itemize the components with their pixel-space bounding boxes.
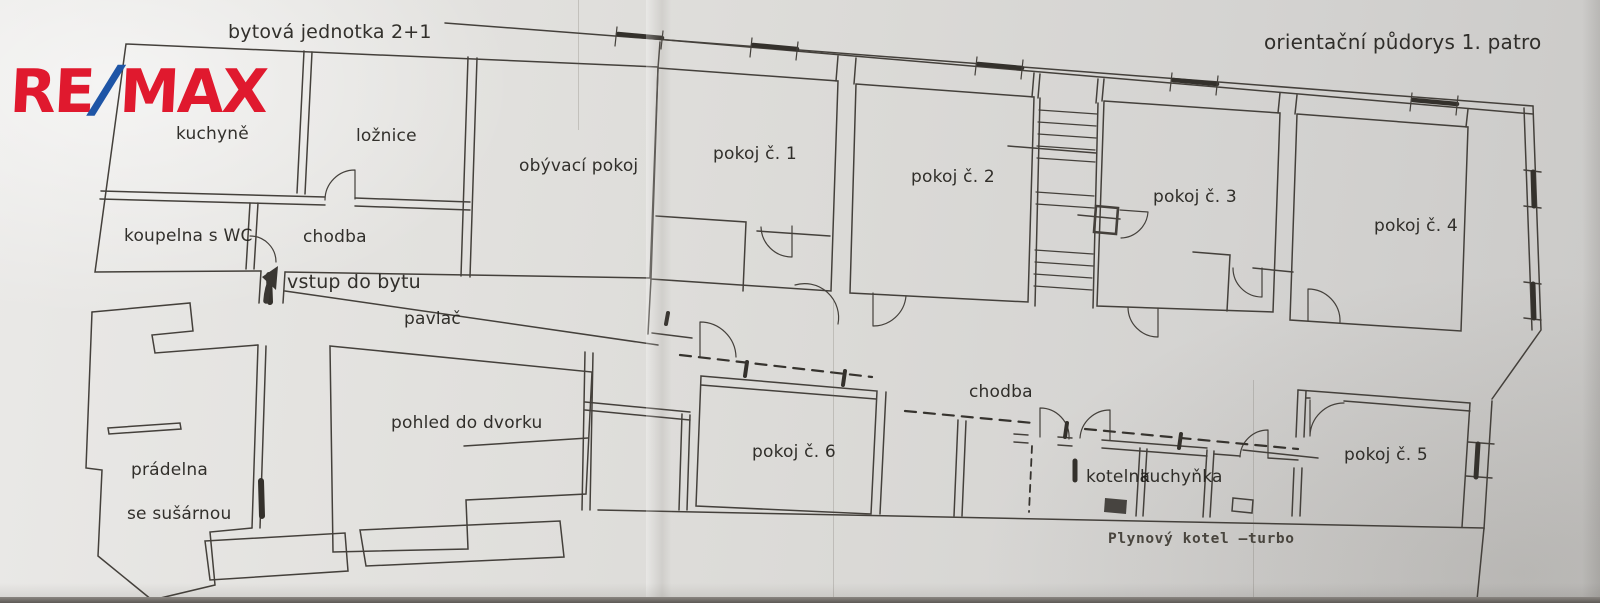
photo-bottom-shadow	[0, 583, 1600, 597]
label-pokoj-2: pokoj č. 2	[911, 167, 995, 187]
label-loznice: ložnice	[356, 126, 417, 146]
label-kuchynka: kuchyňka	[1140, 467, 1223, 487]
title-unit: bytová jednotka 2+1	[228, 21, 432, 43]
page-fold-band	[646, 0, 672, 603]
crease-line	[578, 0, 579, 130]
crease-line	[1253, 380, 1254, 603]
staircase	[1034, 98, 1118, 308]
remax-logo-max: MAX	[118, 62, 268, 122]
label-pokoj-1: pokoj č. 1	[713, 144, 797, 164]
remax-logo: RE / MAX	[8, 58, 268, 126]
label-se-susarnou: se sušárnou	[127, 504, 231, 524]
label-pohled-do-dvorku: pohled do dvorku	[391, 413, 542, 433]
label-pradelna: prádelna	[131, 460, 208, 480]
upper-rooms-walls	[445, 23, 1541, 399]
title-floorplan: orientační půdorys 1. patro	[1264, 30, 1541, 54]
label-plynovy-kotel: Plynový kotel –turbo	[1108, 531, 1295, 547]
label-pokoj-6: pokoj č. 6	[752, 442, 836, 462]
label-vstup-do-bytu: vstup do bytu	[287, 271, 421, 293]
label-pavlac: pavlač	[404, 309, 461, 329]
label-pokoj-5: pokoj č. 5	[1344, 445, 1428, 465]
photo-edge-shadow	[1582, 0, 1600, 603]
label-chodba-byt: chodba	[303, 227, 367, 247]
label-pokoj-4: pokoj č. 4	[1374, 216, 1458, 236]
label-koupelna: koupelna s WC	[124, 226, 253, 246]
label-obyvaci-pokoj: obývací pokoj	[519, 156, 638, 176]
label-kuchyne: kuchyně	[176, 124, 249, 144]
remax-logo-re: RE	[8, 62, 94, 122]
photo-bottom-edge	[0, 597, 1600, 603]
lower-wing-walls	[86, 279, 1494, 600]
scanned-floorplan-photo: RE / MAX bytová jednotka 2+1 orientační …	[0, 0, 1600, 603]
window-marks	[261, 27, 1534, 516]
label-pokoj-3: pokoj č. 3	[1153, 187, 1237, 207]
label-chodba-patro: chodba	[969, 382, 1033, 402]
